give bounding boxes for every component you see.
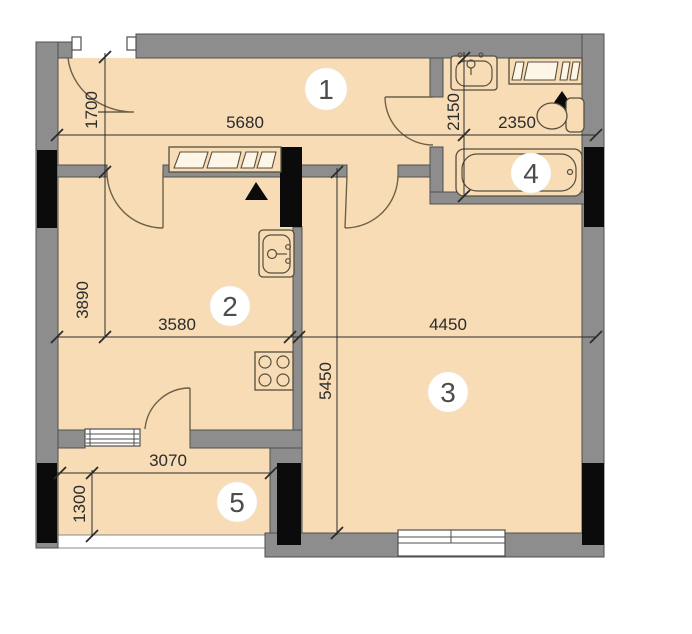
wardrobe-panel [524,62,558,80]
wall-bath-left-upper [430,58,443,97]
floor-plan-svg: 5680 1700 2150 2350 3890 3580 4450 5450 … [0,0,692,629]
structural-column-icon [280,147,302,227]
structural-column-icon [584,147,604,227]
dim-label-1700: 1700 [82,91,101,129]
dim-label-5450: 5450 [316,362,335,400]
apartment-floor [36,34,604,540]
structural-column-icon [37,150,57,228]
dim-label-4450: 4450 [429,315,467,334]
room-number-3: 3 [440,377,456,408]
floor-plan-page: 5680 1700 2150 2350 3890 3580 4450 5450 … [0,0,692,629]
structural-column-icon [582,463,604,545]
room-number-1: 1 [318,74,334,105]
toilet-tank [566,98,584,132]
dim-label-2150: 2150 [444,93,463,131]
living-window [398,530,505,556]
wardrobe-panel [174,152,208,168]
wall-hall-kitchen-a [57,165,107,177]
exterior-gap [36,28,72,42]
dim-label-2350: 2350 [498,113,536,132]
dim-label-5680: 5680 [226,113,264,132]
wall-kitchen-balcony-b [190,430,302,448]
dim-label-3070: 3070 [149,451,187,470]
toilet-icon [537,103,567,129]
dim-label-3580: 3580 [158,315,196,334]
room-number-5: 5 [229,487,245,518]
structural-column-icon [37,463,57,543]
door-jamb [127,37,136,50]
structural-column-icon [277,463,301,545]
dim-label-1300: 1300 [70,485,89,523]
door-jamb [72,37,81,50]
dim-label-3890: 3890 [73,281,92,319]
room-number-2: 2 [222,291,238,322]
wall-top-main [136,34,604,58]
bath-wardrobe [509,58,582,84]
balcony-window [85,429,140,446]
wall-kitchen-balcony-a [58,430,85,448]
hall-wardrobe [169,147,281,172]
room-number-4: 4 [523,158,539,189]
wardrobe-panel [207,152,241,168]
